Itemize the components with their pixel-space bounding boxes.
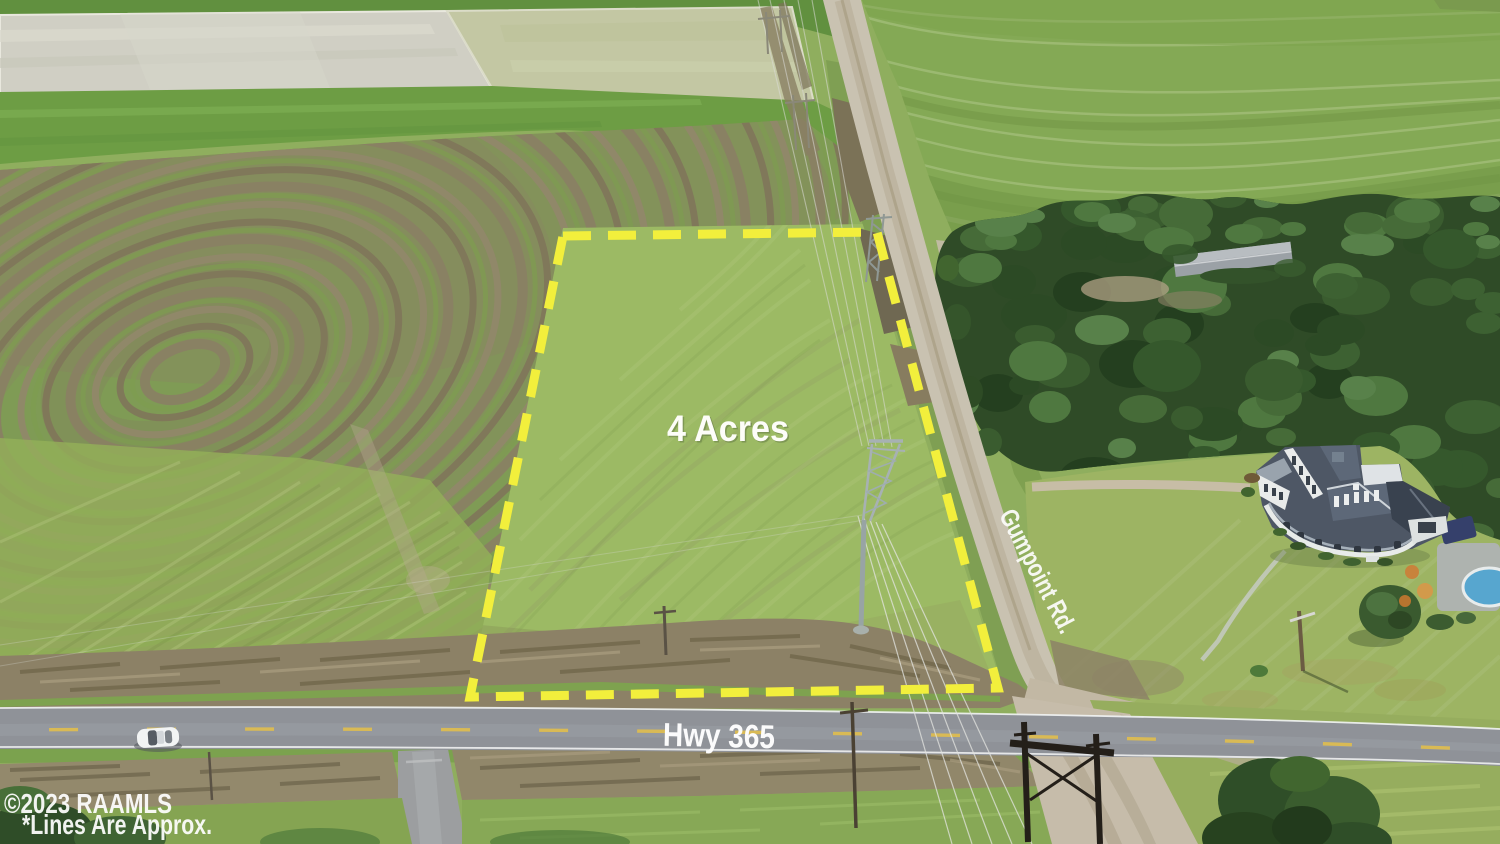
svg-text:*Lines Are Approx.: *Lines Are Approx. [22,809,212,840]
svg-text:Hwy 365: Hwy 365 [663,716,776,756]
svg-text:4 Acres: 4 Acres [667,408,789,449]
